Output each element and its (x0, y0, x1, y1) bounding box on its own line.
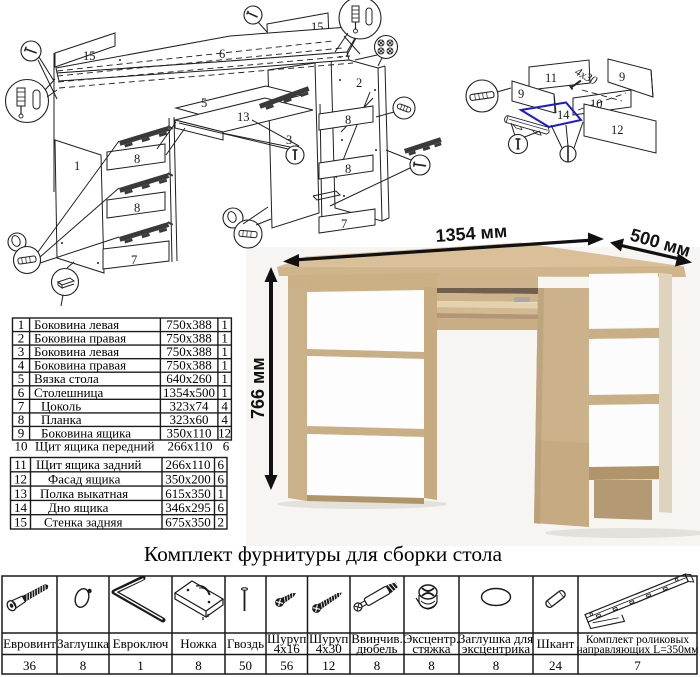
svg-text:дюбель: дюбель (357, 641, 398, 656)
svg-text:стяжка: стяжка (412, 641, 450, 656)
svg-text:766 мм: 766 мм (248, 357, 268, 419)
svg-text:10: 10 (15, 439, 28, 454)
svg-text:Гвоздь: Гвоздь (227, 636, 264, 651)
svg-text:7: 7 (634, 658, 641, 673)
svg-text:8: 8 (493, 658, 500, 673)
svg-text:Фасад ящика: Фасад ящика (48, 472, 121, 487)
svg-text:15: 15 (14, 514, 27, 529)
svg-text:6: 6 (217, 472, 224, 487)
svg-text:6: 6 (223, 439, 230, 454)
svg-text:4х16: 4х16 (274, 641, 301, 656)
svg-text:36: 36 (23, 658, 37, 673)
svg-text:8: 8 (428, 658, 435, 673)
svg-text:13: 13 (14, 486, 27, 501)
svg-text:4х30: 4х30 (316, 641, 342, 656)
svg-text:24: 24 (549, 658, 563, 673)
svg-text:9: 9 (619, 70, 625, 84)
svg-text:266х110: 266х110 (165, 457, 210, 472)
svg-text:6: 6 (217, 500, 224, 515)
svg-text:эксцентрика: эксцентрика (462, 641, 530, 656)
svg-text:350х200: 350х200 (165, 472, 211, 487)
svg-text:Комплект фурнитуры для сборки: Комплект фурнитуры для сборки стола (144, 542, 503, 566)
svg-text:12: 12 (611, 123, 624, 137)
svg-text:13: 13 (237, 110, 250, 124)
svg-text:9: 9 (518, 87, 524, 101)
svg-text:8: 8 (80, 658, 87, 673)
svg-text:Щит ящика передний: Щит ящика передний (35, 439, 154, 454)
svg-text:2: 2 (356, 76, 362, 90)
svg-text:Заглушка: Заглушка (57, 636, 109, 651)
svg-text:Евроключ: Евроключ (113, 636, 169, 651)
svg-text:5: 5 (201, 96, 207, 110)
svg-text:50: 50 (239, 658, 252, 673)
svg-text:7: 7 (341, 217, 347, 231)
svg-text:1: 1 (137, 658, 144, 673)
svg-text:6: 6 (217, 457, 224, 472)
svg-text:8: 8 (345, 113, 351, 127)
svg-text:675х350: 675х350 (165, 514, 211, 529)
svg-text:Щит ящика задний: Щит ящика задний (36, 457, 142, 472)
svg-text:14: 14 (14, 500, 28, 515)
svg-text:346х295: 346х295 (165, 500, 211, 515)
svg-text:8: 8 (134, 201, 140, 215)
svg-text:12: 12 (322, 658, 335, 673)
svg-text:56: 56 (280, 658, 294, 673)
svg-text:8: 8 (134, 152, 140, 166)
svg-text:6: 6 (219, 47, 225, 61)
svg-text:Шкант: Шкант (537, 636, 575, 651)
svg-text:8: 8 (374, 658, 381, 673)
svg-text:направляющих L=350мм: направляющих L=350мм (577, 644, 700, 656)
svg-text:Евровинт: Евровинт (3, 636, 56, 651)
svg-text:8: 8 (345, 162, 351, 176)
svg-text:12: 12 (14, 472, 27, 487)
svg-text:2: 2 (217, 514, 224, 529)
svg-text:1: 1 (74, 159, 80, 173)
svg-text:7: 7 (131, 253, 137, 267)
svg-text:1: 1 (217, 486, 224, 501)
svg-text:11: 11 (545, 71, 557, 85)
svg-text:11: 11 (14, 457, 27, 472)
svg-text:8: 8 (195, 658, 202, 673)
svg-text:14: 14 (557, 108, 570, 122)
svg-text:Дно ящика: Дно ящика (48, 500, 109, 515)
svg-text:Полка выкатная: Полка выкатная (40, 486, 128, 501)
svg-text:Стенка задняя: Стенка задняя (44, 514, 123, 529)
svg-text:Ножка: Ножка (180, 636, 217, 651)
svg-text:266х110: 266х110 (167, 439, 212, 454)
svg-text:615х350: 615х350 (165, 486, 211, 501)
